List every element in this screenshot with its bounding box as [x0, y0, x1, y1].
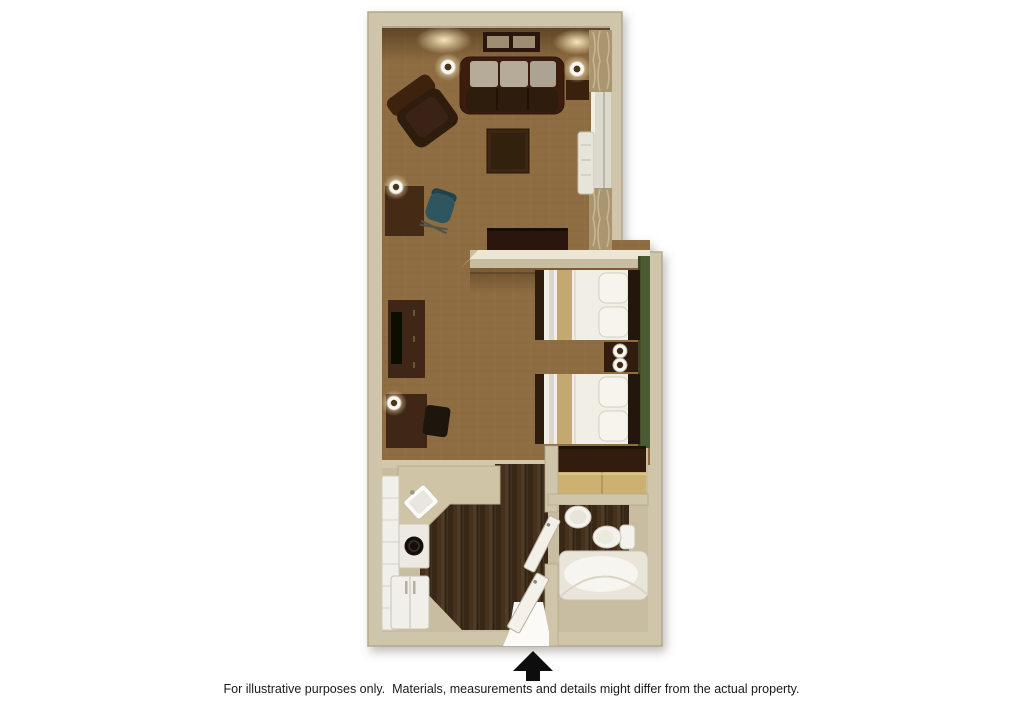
wall-shelf [483, 32, 540, 52]
credenza [487, 228, 568, 251]
wall-lamp-icon [381, 390, 407, 416]
wall-lamp-icon [434, 53, 462, 81]
wall-lamp-icon [383, 174, 409, 200]
nightstand [604, 342, 638, 372]
disclaimer-caption: For illustrative purposes only. Material… [0, 682, 1023, 696]
stove [399, 524, 429, 568]
bed-2 [535, 374, 640, 444]
floor-plan-body [368, 12, 662, 646]
wall-lamp-icon [563, 55, 591, 83]
dresser [558, 446, 646, 472]
floor-plan [0, 0, 1023, 716]
coffee-table [487, 129, 529, 173]
floor-plan-page: For illustrative purposes only. Material… [0, 0, 1023, 716]
tv-icon [391, 312, 402, 364]
lamp-glow-left [416, 26, 472, 54]
side-table [566, 80, 589, 100]
refrigerator [391, 576, 429, 629]
bathroom-top-wall [548, 494, 648, 505]
table-lamp-icon [613, 344, 627, 358]
toilet [593, 525, 635, 549]
sofa [460, 57, 564, 114]
entrance-arrow-icon [513, 651, 553, 681]
stool [422, 404, 451, 437]
bathroom-sink [565, 506, 591, 528]
burner-icon [405, 537, 424, 556]
bed-1 [535, 270, 640, 340]
curtain-bottom-icon [589, 188, 612, 250]
tv-console [388, 300, 425, 378]
closet [558, 446, 646, 494]
bathtub [559, 551, 648, 600]
curtain-top-icon [589, 30, 612, 92]
ac-unit [578, 132, 594, 194]
baseboard-line [382, 26, 610, 28]
table-lamp-icon [613, 358, 627, 372]
